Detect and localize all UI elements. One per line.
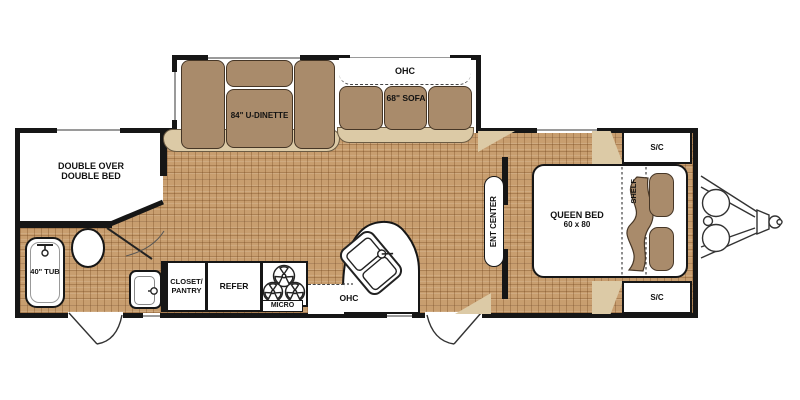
- sc-top-label: S/C: [650, 143, 663, 152]
- refer-label: REFER: [220, 282, 249, 292]
- shelf-label-wrap: SHELF: [625, 167, 643, 215]
- dinette-label: 84" U-DINETTE: [222, 111, 297, 120]
- hitch-coupler: [757, 210, 769, 234]
- pillow-1: [649, 173, 674, 217]
- bathroom-door: [107, 228, 164, 259]
- sofa-cushion-3: [428, 86, 472, 130]
- floorplan-canvas: 84" U-DINETTE OHC 68" SOFA 40" TUB CLOSE…: [0, 0, 800, 400]
- ohc-dinette-cabinet: OHC: [339, 58, 471, 85]
- propane-tank-2: [703, 225, 730, 252]
- closet-pantry: CLOSET/ PANTRY: [166, 261, 207, 312]
- sc-bottom-label: S/C: [650, 293, 663, 302]
- dinette-back: [226, 60, 293, 87]
- queen-bed-label: QUEEN BED 60 x 80: [535, 210, 619, 230]
- bath-door-gap: [68, 312, 123, 319]
- sofa-cushion-1: [339, 86, 383, 130]
- refrigerator: REFER: [206, 261, 262, 312]
- sofa-label: 68" SOFA: [373, 94, 439, 104]
- ohc-kitchen-label: OHC: [331, 294, 367, 304]
- shirt-closet-top: S/C: [622, 131, 692, 164]
- entertainment-center: ENT CENTER: [484, 176, 504, 267]
- closet-label-2: PANTRY: [172, 287, 202, 296]
- tub-faucet: [27, 240, 63, 260]
- bath-sink: [129, 270, 162, 309]
- bath-sink-faucet: [147, 283, 161, 299]
- toilet: [72, 229, 104, 267]
- queen-bed-label-2: 60 x 80: [535, 220, 619, 229]
- dinette-bench-left: [181, 60, 225, 149]
- shirt-closet-bottom: S/C: [622, 281, 692, 314]
- front-bedroom-label-1: DOUBLE OVER: [28, 161, 154, 171]
- trailer-hitch: [701, 176, 782, 258]
- dinette-bench-right: [294, 60, 335, 149]
- shelf-label: SHELF: [630, 179, 639, 204]
- bedroom-angled-wall: [108, 202, 163, 225]
- ent-center-label: ENT CENTER: [489, 196, 498, 247]
- front-bedroom-label: DOUBLE OVER DOUBLE BED: [28, 161, 154, 182]
- tub-label: 40" TUB: [26, 268, 64, 277]
- microwave: MICRO: [262, 300, 303, 312]
- pillow-2: [649, 227, 674, 271]
- queen-bed-label-1: QUEEN BED: [535, 210, 619, 220]
- front-bedroom-label-2: DOUBLE BED: [28, 171, 154, 181]
- propane-tank-1: [703, 190, 730, 217]
- micro-label: MICRO: [271, 302, 294, 310]
- ohc-dinette-label: OHC: [395, 66, 415, 76]
